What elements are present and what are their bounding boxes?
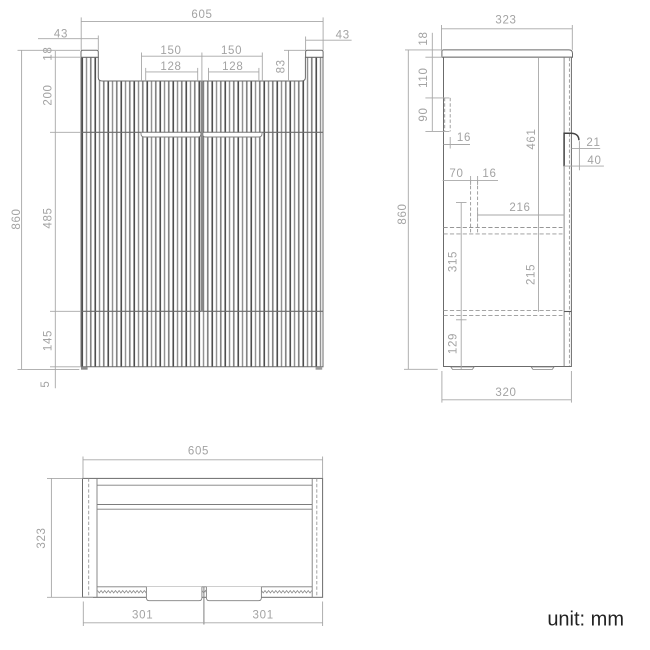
svg-text:150: 150 (160, 45, 181, 57)
svg-text:215: 215 (525, 264, 537, 285)
svg-text:605: 605 (188, 446, 209, 458)
svg-text:145: 145 (43, 330, 55, 351)
svg-text:43: 43 (336, 29, 350, 41)
svg-text:16: 16 (457, 132, 471, 144)
svg-text:860: 860 (397, 203, 409, 224)
svg-text:605: 605 (191, 9, 212, 21)
svg-text:129: 129 (448, 333, 460, 354)
svg-text:83: 83 (275, 59, 287, 73)
svg-text:128: 128 (160, 61, 181, 73)
svg-text:16: 16 (482, 168, 496, 180)
svg-text:18: 18 (43, 46, 55, 60)
svg-text:18: 18 (418, 31, 430, 45)
svg-text:128: 128 (222, 61, 243, 73)
svg-text:43: 43 (54, 29, 68, 41)
svg-text:485: 485 (43, 207, 55, 228)
svg-text:5: 5 (40, 380, 52, 387)
svg-text:323: 323 (36, 527, 48, 548)
svg-text:301: 301 (253, 610, 274, 622)
svg-text:216: 216 (509, 202, 530, 214)
svg-text:315: 315 (448, 251, 460, 272)
svg-text:21: 21 (586, 137, 600, 149)
svg-text:110: 110 (418, 67, 430, 87)
svg-text:unit: mm: unit: mm (547, 609, 624, 631)
svg-text:70: 70 (449, 168, 463, 180)
svg-text:320: 320 (495, 387, 516, 399)
svg-text:200: 200 (43, 84, 55, 105)
svg-text:40: 40 (587, 155, 601, 167)
svg-text:323: 323 (495, 15, 516, 27)
svg-text:860: 860 (11, 208, 23, 229)
svg-text:461: 461 (526, 128, 538, 149)
svg-text:301: 301 (132, 610, 153, 622)
svg-text:90: 90 (418, 107, 430, 121)
svg-text:150: 150 (221, 45, 242, 57)
